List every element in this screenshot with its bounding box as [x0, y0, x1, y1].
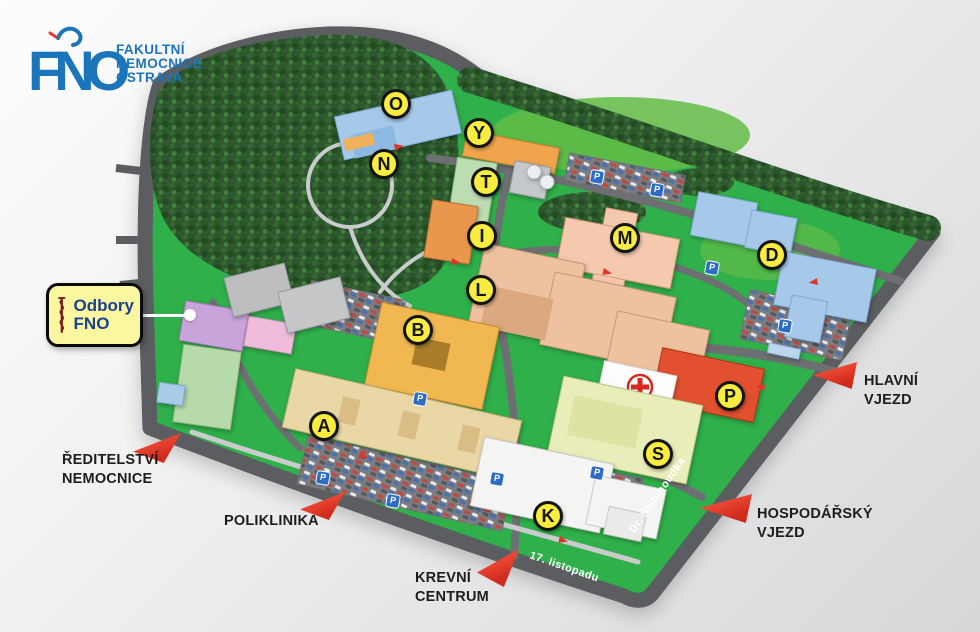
- fno-logo: FNO FAKULTNÍ NEMOCNICE OSTRAVA: [28, 24, 203, 104]
- marker-building-i: I: [467, 221, 497, 251]
- marker-building-a: A: [309, 411, 339, 441]
- building-small-blue: [157, 382, 186, 405]
- marker-building-n: N: [369, 149, 399, 179]
- marker-building-y: Y: [464, 118, 494, 148]
- callout-line-2: FNO: [74, 315, 134, 333]
- callout-connector-dot: [184, 309, 196, 321]
- marker-building-d: D: [757, 240, 787, 270]
- marker-building-k: K: [533, 501, 563, 531]
- campus-map-page: FNO FAKULTNÍ NEMOCNICE OSTRAVA Odbory FN…: [0, 0, 980, 632]
- entrance-label-hlavni-vjezd: HLAVNÍ VJEZD: [864, 372, 918, 410]
- marker-building-b: B: [403, 315, 433, 345]
- marker-building-o: O: [381, 89, 411, 119]
- callout-connector-line: [141, 314, 189, 317]
- marker-building-l: L: [466, 275, 496, 305]
- parking-sign: P: [777, 318, 793, 334]
- callout-line-1: Odbory: [74, 297, 134, 315]
- logo-abbr: FNO: [28, 39, 129, 102]
- parking-sign: P: [704, 260, 720, 276]
- parking-sign: P: [315, 470, 331, 486]
- odbory-fno-callout: Odbory FNO: [46, 283, 143, 347]
- entrance-label-poliklinika: POLIKLINIKA: [224, 512, 319, 531]
- entrance-label-reditelstvi: ŘEDITELSTVÍ NEMOCNICE: [62, 451, 158, 489]
- marker-building-p: P: [715, 381, 745, 411]
- logo-line-3: OSTRAVA: [116, 70, 183, 85]
- marker-building-s: S: [643, 439, 673, 469]
- rod-of-asclepius-icon: [55, 292, 69, 338]
- parking-sign: P: [385, 493, 401, 509]
- parking-sign: P: [649, 182, 665, 198]
- marker-building-m: M: [610, 223, 640, 253]
- parking-sign: P: [589, 169, 605, 185]
- marker-building-t: T: [471, 167, 501, 197]
- logo-line-2: NEMOCNICE: [116, 56, 202, 71]
- logo-line-1: FAKULTNÍ: [116, 42, 186, 57]
- entrance-label-hospodarsky-vjezd: HOSPODÁŘSKÝ VJEZD: [757, 505, 873, 543]
- parking-sign: P: [412, 391, 428, 407]
- parking-sign: P: [589, 465, 605, 481]
- parking-sign: P: [489, 471, 505, 487]
- entrance-label-krevni-centrum: KREVNÍ CENTRUM: [415, 569, 489, 607]
